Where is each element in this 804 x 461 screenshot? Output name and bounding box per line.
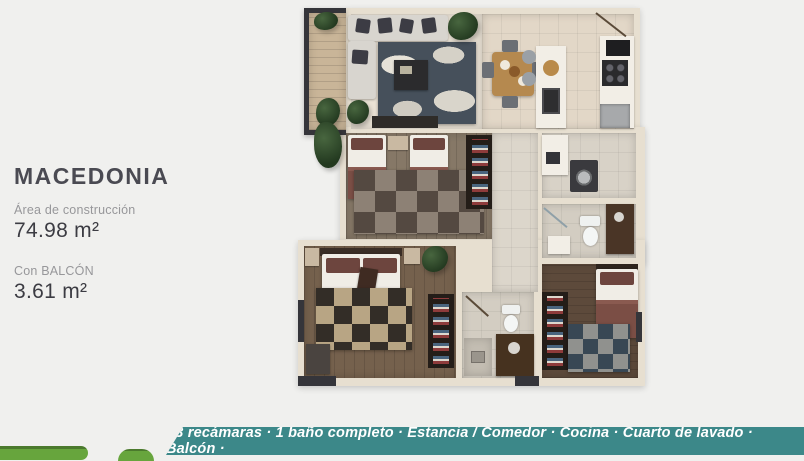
master-closet-clothes [433, 298, 449, 364]
master-rug [316, 288, 412, 350]
coffee-table [394, 60, 428, 90]
master-bed-pillow [326, 258, 360, 273]
balcony-area-label: Con BALCÓN [14, 264, 94, 278]
bedroom3-window-frame [636, 312, 642, 342]
laundry-basket [546, 152, 560, 164]
master-nightstand-right [404, 248, 420, 264]
dining-centerpiece [509, 66, 520, 77]
tv-console [372, 116, 438, 128]
dining-chair [502, 96, 518, 108]
logo-leaf-dome [118, 449, 154, 461]
feature-banner-text: · 3 recámaras · 1 baño completo · Estanc… [166, 425, 804, 457]
bathroom1-sink-cabinet [548, 236, 570, 254]
kitchen-island [536, 46, 566, 128]
sofa-cushion [355, 18, 371, 34]
master-nightstand-left [305, 248, 319, 266]
master-bench [306, 344, 330, 374]
bathroom1-toilet-tank [580, 216, 600, 226]
bedroom3-bed-pillow [600, 272, 634, 285]
balcony-area-value: 3.61 m² [14, 280, 87, 304]
hallway-floor [492, 133, 538, 292]
refrigerator [600, 104, 630, 128]
bathroom2-shower-drain [471, 351, 485, 363]
bathroom2-toilet-tank [502, 305, 520, 314]
floor-plan [290, 2, 650, 388]
exterior-plant [314, 122, 342, 168]
bedroom2-nightstand [388, 136, 408, 150]
construction-area-label: Área de construcción [14, 203, 135, 217]
twin-bed-2-pillow [413, 138, 445, 150]
master-window-frame [298, 300, 304, 342]
stove [602, 60, 628, 86]
sofa-cushion [352, 49, 369, 64]
bedroom2-rug [354, 170, 484, 234]
bedroom2-closet-clothes [472, 139, 488, 205]
bathroom2-toilet-bowl [504, 315, 518, 332]
bar-stool [522, 72, 536, 86]
bedroom3-closet-clothes [547, 296, 563, 366]
dining-chair [482, 62, 494, 78]
logo-leaf-bar [0, 446, 88, 460]
twin-bed-1-pillow [351, 138, 383, 150]
bathroom2-vanity [496, 334, 534, 376]
construction-area-value: 74.98 m² [14, 219, 99, 243]
dining-chair [502, 40, 518, 52]
feature-banner: · 3 recámaras · 1 baño completo · Estanc… [166, 427, 804, 455]
island-bowl [543, 60, 559, 76]
bedroom3-rug [568, 324, 630, 372]
page: { "info": { "title": "MACEDONIA", "const… [0, 0, 804, 455]
sofa-cushion [399, 18, 414, 34]
sofa-cushion [377, 17, 392, 33]
bathroom1-toilet-bowl [583, 227, 598, 246]
bottom-window-frame [515, 376, 539, 386]
bar-stool [522, 50, 536, 64]
island-sink [542, 88, 560, 114]
washing-machine [570, 160, 598, 192]
plan-title: MACEDONIA [14, 163, 169, 190]
master-corner-wall [298, 376, 336, 386]
coffee-table-tray [400, 66, 412, 74]
oven [606, 40, 630, 56]
bathroom1-vanity-sink [614, 212, 624, 222]
sofa-cushion [421, 17, 437, 34]
bathroom2-vanity-sink [508, 342, 520, 354]
